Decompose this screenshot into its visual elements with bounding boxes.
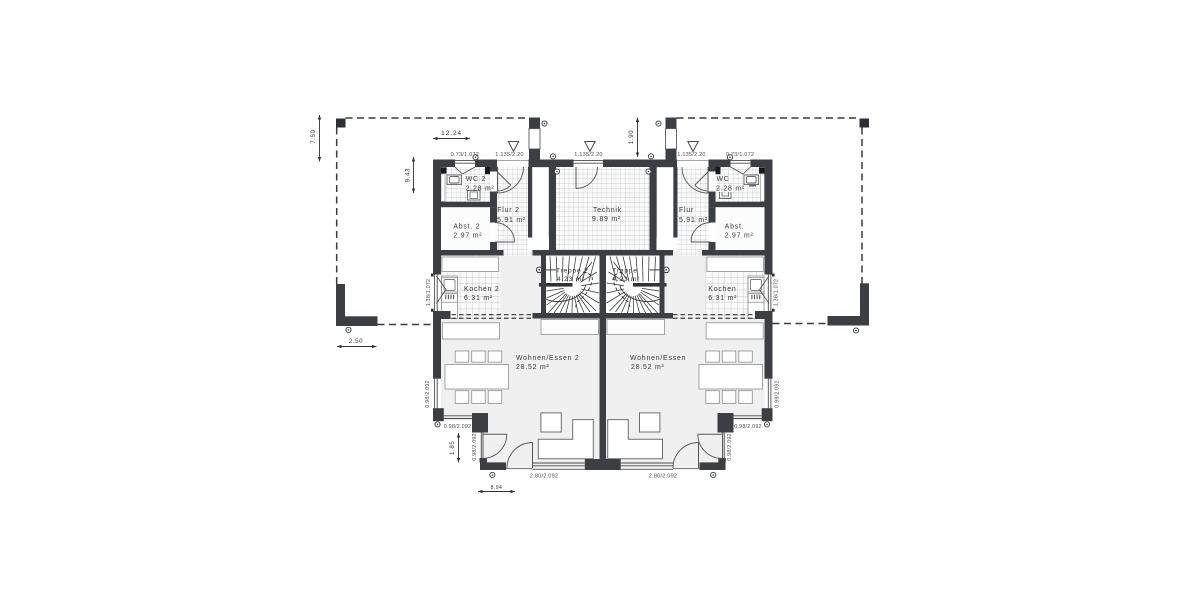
svg-text:4.23 m²: 4.23 m² xyxy=(557,276,585,283)
svg-text:Abst.: Abst. xyxy=(725,223,745,230)
svg-text:28.52 m²: 28.52 m² xyxy=(516,364,550,371)
svg-text:28.52 m²: 28.52 m² xyxy=(631,364,665,371)
svg-text:1.135/2.20: 1.135/2.20 xyxy=(677,152,705,158)
svg-text:1.90: 1.90 xyxy=(628,130,635,144)
svg-text:0.98/2.092: 0.98/2.092 xyxy=(734,424,761,430)
svg-text:1.135/2.20: 1.135/2.20 xyxy=(495,152,523,158)
svg-text:Flur 2: Flur 2 xyxy=(497,207,519,214)
svg-text:7.50: 7.50 xyxy=(310,129,317,143)
svg-text:5.91 m²: 5.91 m² xyxy=(679,217,708,224)
svg-text:2.97 m²: 2.97 m² xyxy=(725,233,754,240)
svg-text:6.31 m²: 6.31 m² xyxy=(708,295,737,302)
svg-text:9.43: 9.43 xyxy=(405,168,412,182)
svg-text:Wohnen/Essen 2: Wohnen/Essen 2 xyxy=(516,355,580,362)
svg-text:0.98/2.092: 0.98/2.092 xyxy=(444,424,471,430)
svg-text:WC: WC xyxy=(717,176,730,183)
svg-text:WC 2: WC 2 xyxy=(466,176,486,183)
svg-text:1.135/2.20: 1.135/2.20 xyxy=(574,152,602,158)
svg-text:2.28 m²: 2.28 m² xyxy=(466,186,495,193)
svg-text:0.98/2.092: 0.98/2.092 xyxy=(775,380,781,407)
svg-text:2.80/2.092: 2.80/2.092 xyxy=(649,473,677,479)
svg-text:0.98/2.092: 0.98/2.092 xyxy=(472,433,478,460)
svg-text:Abst. 2: Abst. 2 xyxy=(453,223,480,230)
svg-text:12.24: 12.24 xyxy=(441,130,462,137)
svg-text:Flur: Flur xyxy=(679,207,694,214)
svg-text:2.80/2.092: 2.80/2.092 xyxy=(530,473,558,479)
svg-text:0.98/2.092: 0.98/2.092 xyxy=(425,380,431,407)
svg-text:4.23 m²: 4.23 m² xyxy=(612,276,640,283)
svg-text:2.97 m²: 2.97 m² xyxy=(453,233,482,240)
svg-text:Wohnen/Essen: Wohnen/Essen xyxy=(630,355,686,362)
svg-text:0.98/2.092: 0.98/2.092 xyxy=(727,433,733,460)
svg-text:Kochen: Kochen xyxy=(708,286,736,293)
svg-text:0.73/1.072: 0.73/1.072 xyxy=(726,152,754,158)
svg-text:Treppe 2: Treppe 2 xyxy=(556,268,589,275)
svg-text:Technik: Technik xyxy=(593,207,622,214)
svg-text:2.50: 2.50 xyxy=(349,338,363,345)
svg-text:6.31 m²: 6.31 m² xyxy=(464,295,493,302)
svg-text:Treppe: Treppe xyxy=(612,268,637,275)
svg-text:0.73/1.072: 0.73/1.072 xyxy=(451,152,479,158)
svg-text:8.94: 8.94 xyxy=(491,485,503,491)
svg-text:1.85: 1.85 xyxy=(449,441,456,455)
svg-text:Kochen 2: Kochen 2 xyxy=(464,286,500,293)
svg-text:9.89 m²: 9.89 m² xyxy=(592,216,621,223)
svg-text:1.38/1.072: 1.38/1.072 xyxy=(426,279,432,306)
svg-text:2.28 m²: 2.28 m² xyxy=(716,186,745,193)
svg-text:5.91 m²: 5.91 m² xyxy=(497,217,526,224)
svg-text:1.38/1.072: 1.38/1.072 xyxy=(774,279,780,306)
